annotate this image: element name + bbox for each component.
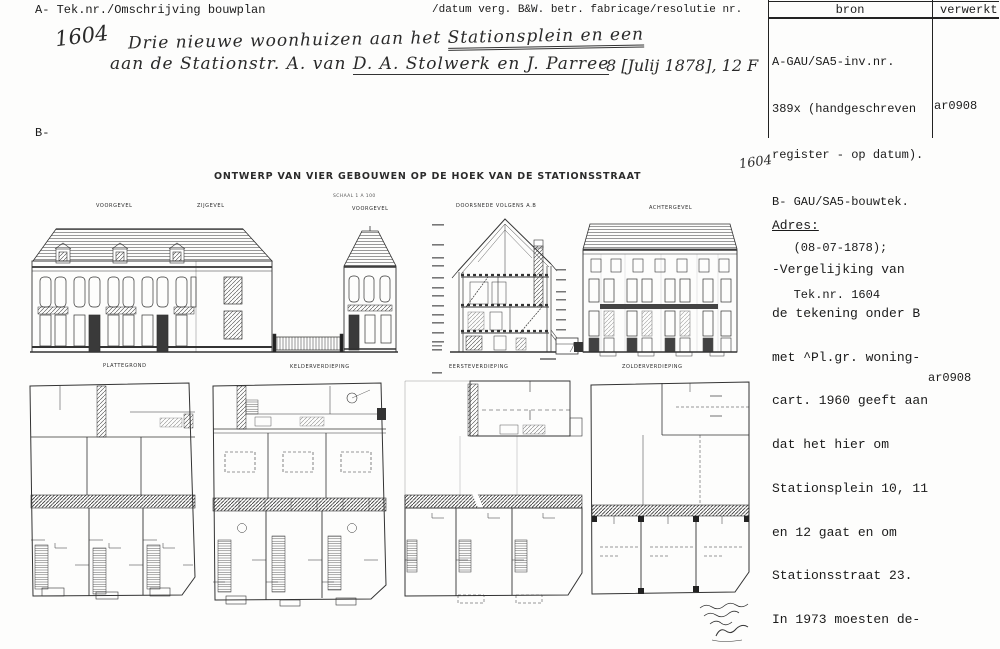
adres-block: Adres: -Vergelijking van de tekening ond… [772,190,928,649]
handwritten-description-line2: aan de Stationstr. A. van D. A. Stolwerk… [110,54,609,74]
bron-line: register - op datum). [772,148,923,164]
field-label-datum: /datum verg. B&W. betr. fabricage/resolu… [432,4,742,16]
line2-underlined: D. A. Stolwerk en J. Parree [353,54,609,75]
adres-line: Stationsplein 10, 11 [772,482,928,497]
adres-line: Stationsstraat 23. [772,569,928,584]
verwerkt-cell: ar0908 [934,99,977,113]
label-achtergevel: ACHTERGEVEL [649,205,692,211]
label-plattegrond: PLATTEGROND [103,363,147,369]
adres-line: de tekening onder B [772,307,928,322]
handwritten-date: 8 [Julij 1878], 12 F [606,56,758,75]
adres-heading: Adres: [772,219,928,234]
front-elevation-row [30,226,398,352]
drawing-title: ONTWERP VAN VIER GEBOUWEN OP DE HOEK VAN… [214,171,641,182]
label-zolderverdieping: ZOLDERVERDIEPING [622,364,683,370]
table-top-border [768,1,999,2]
adres-line: met ^Pl.gr. woning- [772,351,928,366]
table-left-border [768,0,769,138]
table-column-divider [932,0,933,138]
line2-text: aan de Stationstr. A. van [110,54,353,74]
adres-line: dat het hier om [772,438,928,453]
adres-line: cart. 1960 geeft aan [772,394,928,409]
plan-kelderverdieping [213,383,386,606]
adres-code: ar0908 [928,371,971,385]
column-header-bron: bron [768,3,932,17]
label-zijgevel: ZIJGEVEL [197,203,225,209]
plan-plattegrond [30,383,195,599]
label-eersteverdieping: EERSTEVERDIEPING [449,364,508,370]
plan-eersteverdieping [405,381,582,603]
adres-line: -Vergelijking van [772,263,928,278]
adres-line: en 12 gaat en om [772,526,928,541]
adres-line: In 1973 moesten de- [772,613,928,628]
label-voorgevel-1: VOORGEVEL [96,203,132,209]
bron-line: A-GAU/SA5-inv.nr. [772,55,923,71]
rear-elevation [570,224,737,356]
drawing-scale: SCHAAL 1 A 100 [333,194,376,199]
table-header-rule [768,17,999,19]
line1-underlined: Stationsplein en een [447,24,644,50]
label-voorgevel-2: VOORGEVEL [352,206,388,212]
bron-line: 389x (handgeschreven [772,102,923,118]
fence [273,334,343,352]
field-label-a: A- Tek.nr./Omschrijving bouwplan [35,3,265,17]
field-label-b: B- [35,126,49,140]
column-header-verwerkt: verwerkt [940,3,998,17]
plan-zolderverdieping [591,382,749,594]
archive-record-card: A- Tek.nr./Omschrijving bouwplan /datum … [0,0,1000,649]
label-doorsnede: DOORSNEDE VOLGENS A.B [456,203,536,209]
cross-section [432,219,578,374]
label-kelderverdieping: KELDERVERDIEPING [290,364,350,370]
handwritten-note-scribble [700,603,748,641]
